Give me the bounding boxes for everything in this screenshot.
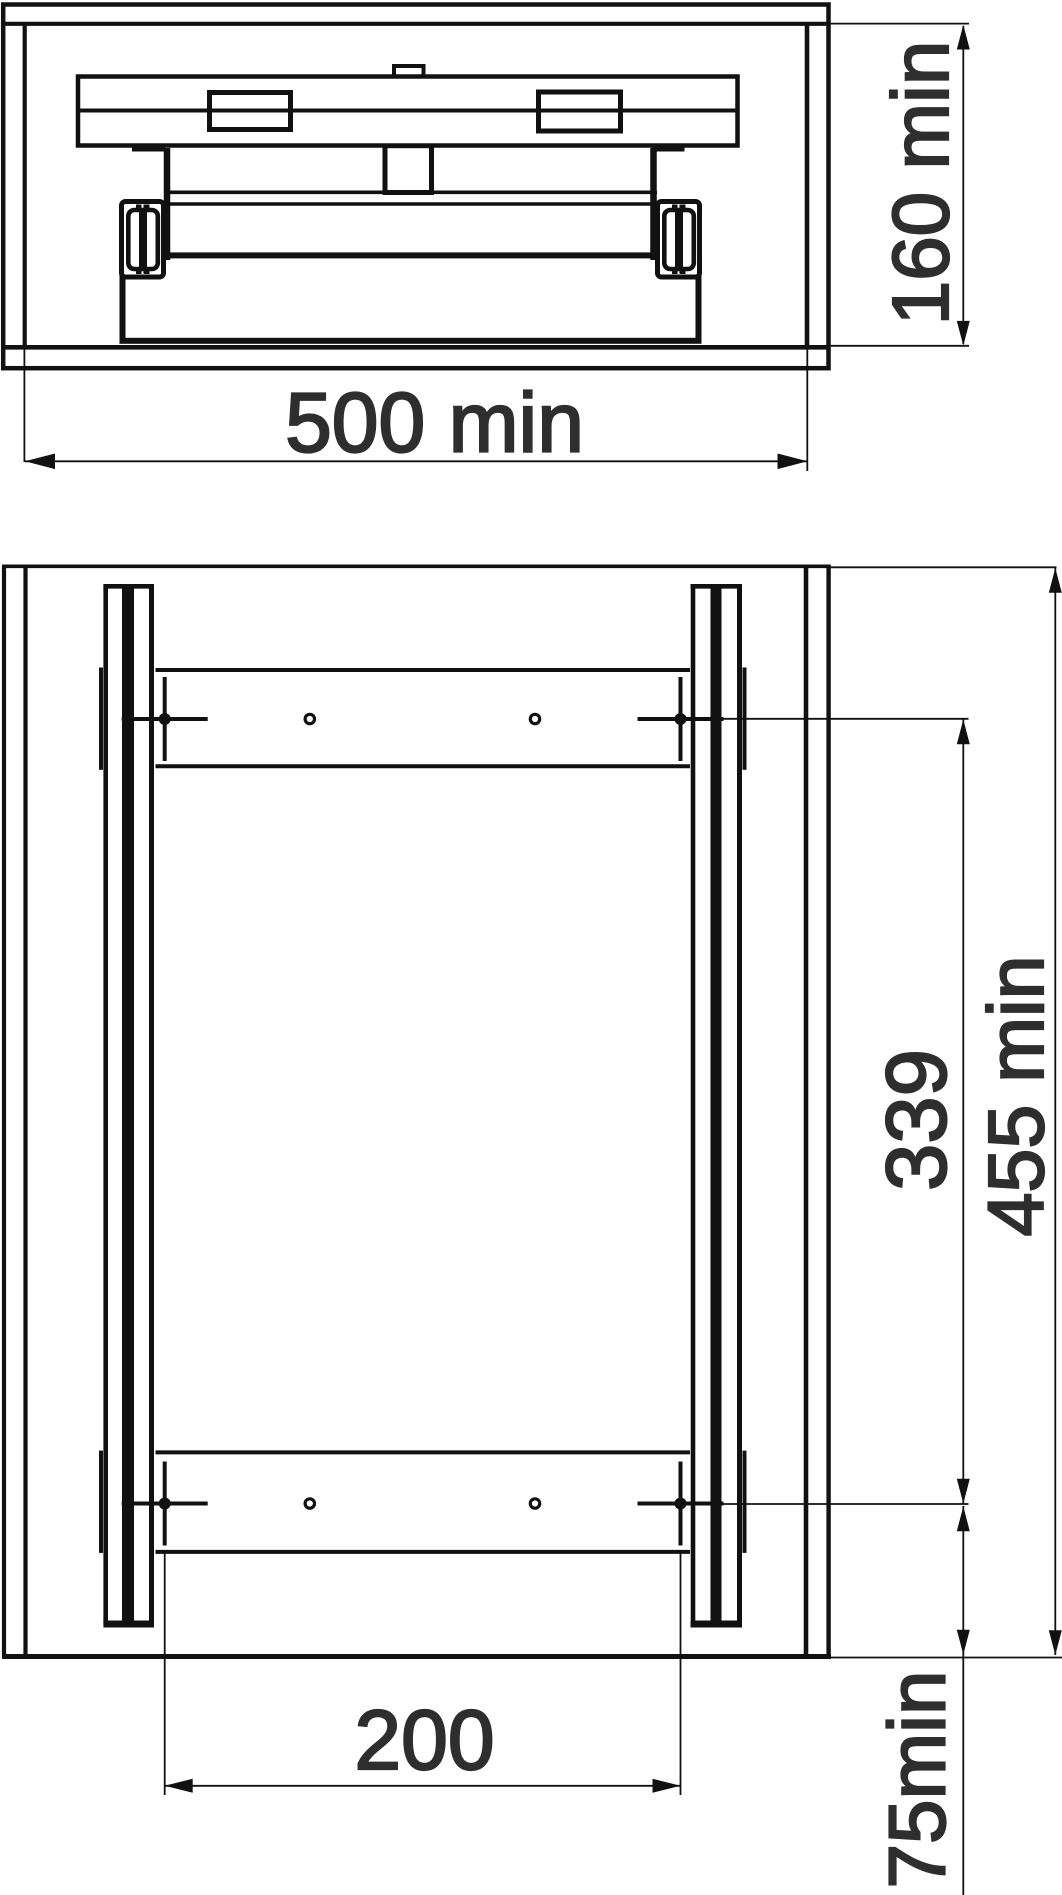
svg-text:500 min: 500 min — [285, 375, 584, 469]
svg-text:160 min: 160 min — [876, 41, 965, 326]
svg-text:75min: 75min — [873, 1671, 962, 1889]
svg-text:455 min: 455 min — [971, 955, 1060, 1236]
svg-text:200: 200 — [354, 1693, 494, 1787]
svg-text:339: 339 — [870, 1049, 965, 1191]
